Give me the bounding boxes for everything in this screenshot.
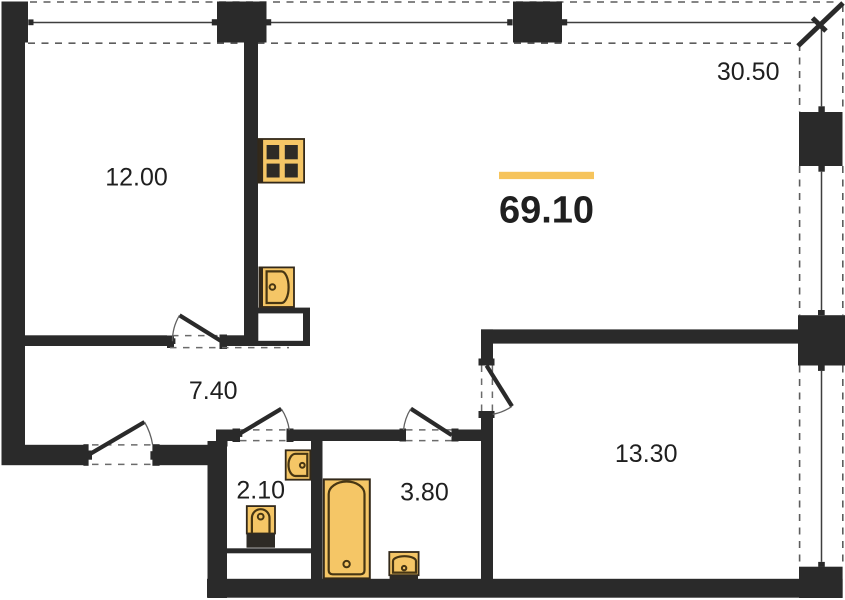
svg-text:3.80: 3.80 (400, 478, 449, 506)
svg-text:30.50: 30.50 (717, 58, 780, 86)
svg-text:69.10: 69.10 (499, 190, 594, 232)
svg-text:13.30: 13.30 (615, 440, 678, 468)
svg-text:7.40: 7.40 (189, 377, 238, 405)
svg-text:12.00: 12.00 (105, 163, 168, 191)
svg-text:2.10: 2.10 (236, 477, 285, 505)
